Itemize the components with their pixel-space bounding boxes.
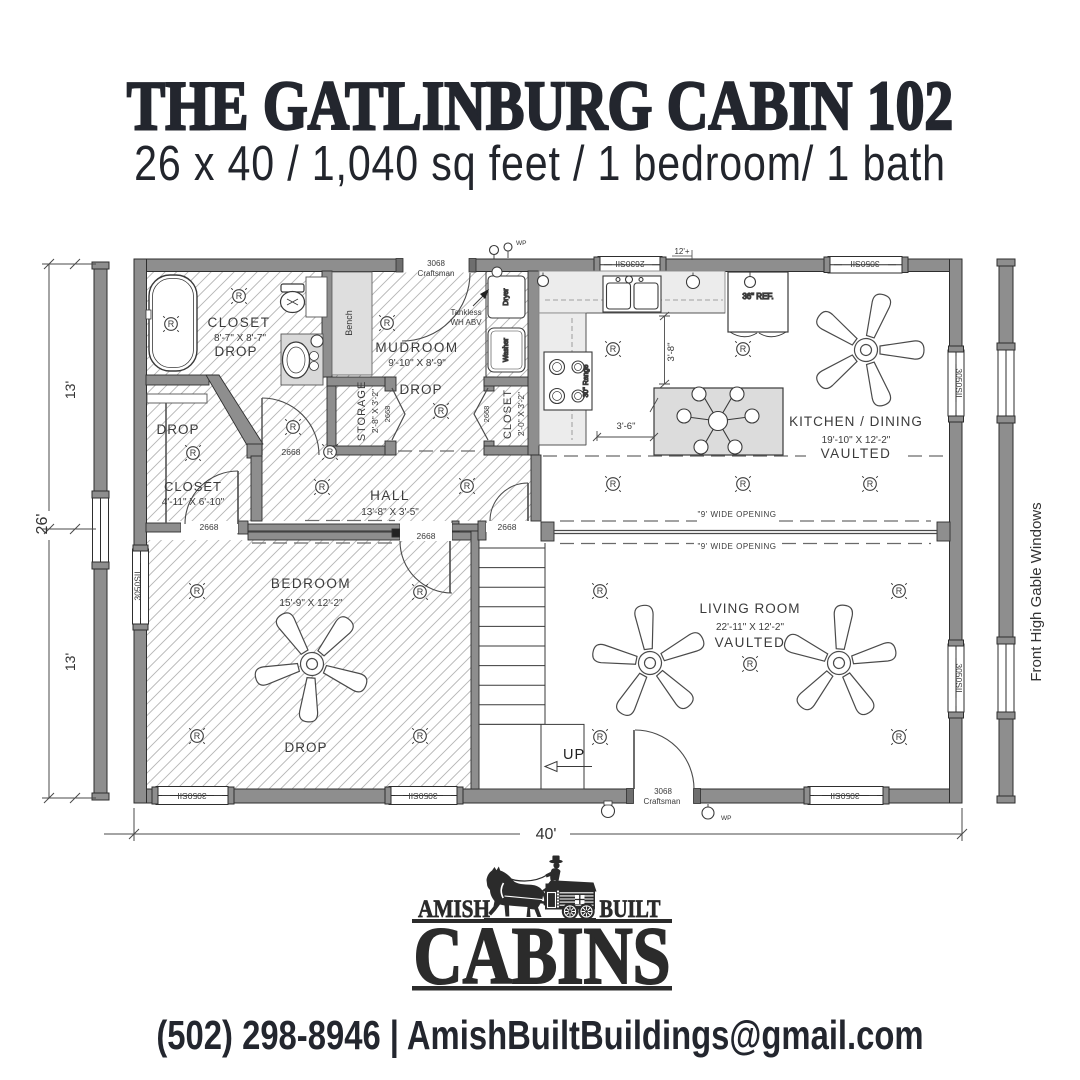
svg-text:VAULTED: VAULTED <box>821 446 892 461</box>
svg-text:DROP: DROP <box>156 422 199 437</box>
svg-text:26': 26' <box>34 514 51 535</box>
svg-text:30" Range: 30" Range <box>583 364 590 397</box>
svg-text:CABINS: CABINS <box>414 910 671 994</box>
svg-text:2668: 2668 <box>498 522 517 532</box>
svg-text:3050SII: 3050SII <box>954 663 964 692</box>
svg-text:3068: 3068 <box>654 787 672 796</box>
svg-text:MUDROOM: MUDROOM <box>375 340 458 355</box>
svg-text:3050SII: 3050SII <box>177 791 206 801</box>
svg-text:DROP: DROP <box>284 740 327 755</box>
svg-text:CLOSET: CLOSET <box>164 479 222 494</box>
svg-text:8'-7" X 8'-7": 8'-7" X 8'-7" <box>214 333 267 344</box>
svg-text:"9' WIDE OPENING: "9' WIDE OPENING <box>697 542 776 551</box>
svg-text:STORAGE: STORAGE <box>356 381 368 442</box>
svg-text:WH ABV: WH ABV <box>450 318 482 327</box>
svg-text:2668: 2668 <box>417 531 436 541</box>
svg-text:40': 40' <box>536 826 557 843</box>
svg-text:3050SII: 3050SII <box>830 791 859 801</box>
svg-text:3050SII: 3050SII <box>133 571 143 600</box>
svg-text:13': 13' <box>62 381 78 399</box>
svg-text:3'-6": 3'-6" <box>617 421 636 432</box>
svg-text:36" REF.: 36" REF. <box>742 292 773 301</box>
svg-text:Washer: Washer <box>503 337 510 362</box>
svg-text:CLOSET: CLOSET <box>207 315 270 330</box>
svg-text:2'-8" X 3'-2": 2'-8" X 3'-2" <box>370 389 380 433</box>
svg-text:BEDROOM: BEDROOM <box>271 576 351 591</box>
svg-text:3050SII: 3050SII <box>954 368 964 397</box>
svg-text:13'-8" X 3'-5": 13'-8" X 3'-5" <box>361 507 419 518</box>
svg-text:3050SII: 3050SII <box>850 259 879 269</box>
svg-text:2630SII: 2630SII <box>615 259 644 269</box>
svg-text:2668: 2668 <box>282 447 301 457</box>
svg-text:UP: UP <box>563 747 585 763</box>
svg-text:VAULTED: VAULTED <box>715 635 786 650</box>
svg-text:3050SII: 3050SII <box>408 791 437 801</box>
svg-text:DROP: DROP <box>214 344 257 359</box>
svg-text:Tankless: Tankless <box>450 308 481 317</box>
svg-text:12'+: 12'+ <box>674 247 689 256</box>
svg-text:22'-11" X 12'-2": 22'-11" X 12'-2" <box>716 622 784 633</box>
svg-text:WP: WP <box>721 815 731 822</box>
svg-text:HALL: HALL <box>370 488 410 503</box>
svg-text:Bench: Bench <box>344 310 354 336</box>
svg-text:2668: 2668 <box>200 522 219 532</box>
svg-text:Front High Gable Windows: Front High Gable Windows <box>1028 502 1045 681</box>
svg-text:3'-8": 3'-8" <box>666 343 677 362</box>
svg-text:Dryer: Dryer <box>503 288 510 306</box>
svg-text:2668: 2668 <box>383 406 392 423</box>
svg-text:CLOSET: CLOSET <box>502 389 514 439</box>
svg-text:Craftsman: Craftsman <box>418 269 455 278</box>
svg-text:Craftsman: Craftsman <box>644 797 681 806</box>
svg-text:WP: WP <box>516 240 526 247</box>
svg-text:15'-9" X 12'-2": 15'-9" X 12'-2" <box>279 598 343 609</box>
svg-text:4'-11" X 6'-10": 4'-11" X 6'-10" <box>162 497 225 508</box>
svg-text:13': 13' <box>62 653 78 671</box>
svg-text:DROP: DROP <box>399 382 442 397</box>
svg-text:"9' WIDE OPENING: "9' WIDE OPENING <box>697 510 776 519</box>
svg-text:KITCHEN / DINING: KITCHEN / DINING <box>789 414 923 429</box>
svg-text:9'-10" X 8'-9": 9'-10" X 8'-9" <box>388 358 446 369</box>
svg-text:2'-0" X 3'-2": 2'-0" X 3'-2" <box>516 392 526 436</box>
svg-text:19'-10" X 12'-2": 19'-10" X 12'-2" <box>822 435 891 446</box>
svg-text:3068: 3068 <box>427 259 445 268</box>
svg-text:LIVING ROOM: LIVING ROOM <box>699 601 800 616</box>
svg-text:2668: 2668 <box>482 406 491 423</box>
